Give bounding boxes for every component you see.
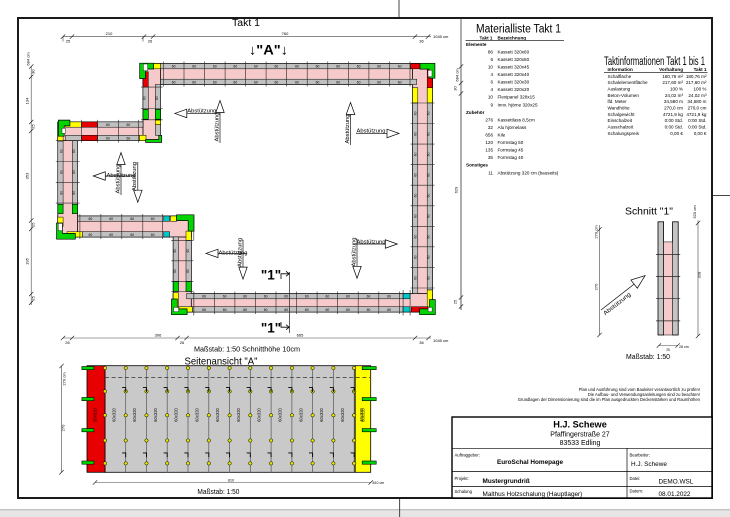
svg-text:60: 60 [109,233,113,237]
svg-text:30: 30 [453,86,458,91]
svg-text:180,76 m²: 180,76 m² [662,74,683,79]
svg-text:60: 60 [213,65,217,69]
svg-text:60: 60 [151,217,155,221]
svg-text:Elemente: Elemente [466,42,487,47]
svg-text:60: 60 [284,308,288,312]
svg-text:Alu hjörnelass: Alu hjörnelass [498,125,528,130]
svg-text:86: 86 [488,49,494,54]
svg-text:60x320: 60x320 [111,407,116,421]
svg-text:"1": "1" [261,268,281,283]
svg-text:60: 60 [89,233,93,237]
svg-text:60: 60 [59,170,63,174]
svg-text:60: 60 [305,308,309,312]
svg-text:60: 60 [192,80,196,84]
svg-text:Kile: Kile [498,133,506,138]
svg-text:11: 11 [488,170,493,175]
svg-text:Mustergrundriß: Mustergrundriß [483,478,530,485]
svg-text:60: 60 [413,214,417,218]
svg-text:60: 60 [151,233,155,237]
svg-text:60: 60 [413,132,417,136]
svg-text:Bezeichnung: Bezeichnung [498,36,527,41]
svg-text:760: 760 [282,31,289,36]
svg-text:6: 6 [490,57,493,62]
svg-text:60: 60 [426,276,430,280]
svg-text:60x320: 60x320 [340,407,345,421]
svg-text:Kassettlass 8,5cm: Kassettlass 8,5cm [498,117,535,122]
svg-text:60: 60 [106,136,110,140]
svg-text:60: 60 [284,295,288,299]
svg-text:35: 35 [488,155,494,160]
svg-text:60: 60 [336,65,340,69]
svg-text:Innv. hjörne 320x25: Innv. hjörne 320x25 [498,102,538,107]
svg-text:60: 60 [254,80,258,84]
svg-text:60x320: 60x320 [278,407,283,421]
svg-text:Abstützung: Abstützung [214,113,220,142]
svg-text:60: 60 [172,65,176,69]
svg-text:0:00 Std.: 0:00 Std. [688,118,706,123]
svg-text:Takt 1: Takt 1 [480,36,493,41]
svg-text:Ausschalzeit: Ausschalzeit [608,125,635,130]
svg-text:60: 60 [275,80,279,84]
svg-text:60: 60 [387,295,391,299]
svg-text:60: 60 [377,65,381,69]
svg-text:665: 665 [297,333,304,338]
svg-text:656: 656 [485,133,493,138]
svg-text:60: 60 [202,308,206,312]
svg-text:270: 270 [61,424,66,431]
svg-text:Schnitt "1": Schnitt "1" [625,206,673,218]
svg-text:217,60 m²: 217,60 m² [686,80,707,85]
svg-text:60: 60 [346,295,350,299]
svg-text:60: 60 [155,96,159,100]
svg-text:60: 60 [264,308,268,312]
svg-text:Zubehör: Zubehör [466,110,485,115]
svg-text:Formstag 40: Formstag 40 [498,155,524,160]
svg-text:60: 60 [413,194,417,198]
svg-text:EuroSchal Homepage: EuroSchal Homepage [497,459,563,466]
svg-text:Grundlagen der Dimensionierung: Grundlagen der Dimensionierung sind die … [518,397,701,402]
svg-text:328: 328 [697,271,702,278]
svg-text:24,02 m³: 24,02 m³ [688,93,707,98]
svg-text:180,76 m²: 180,76 m² [686,74,707,79]
svg-text:Abstützung: Abstützung [132,162,138,191]
svg-text:Datei:: Datei: [630,476,641,481]
svg-text:60: 60 [172,80,176,84]
svg-text:60: 60 [59,191,63,195]
svg-text:Materialliste Takt 1: Materialliste Takt 1 [476,24,561,36]
svg-text:60: 60 [387,308,391,312]
svg-text:60: 60 [336,80,340,84]
svg-text:"1": "1" [261,321,281,336]
svg-text:60: 60 [106,123,110,127]
svg-text:26: 26 [148,38,153,43]
svg-text:60: 60 [295,65,299,69]
svg-text:Information: Information [608,67,633,72]
svg-text:60: 60 [398,80,402,84]
svg-text:60x320: 60x320 [298,407,303,421]
svg-text:Abstützung: Abstützung [351,238,357,267]
svg-text:60: 60 [213,80,217,84]
svg-text:Abstützung: Abstützung [357,239,386,245]
svg-text:36: 36 [419,340,424,345]
svg-text:270: 270 [594,283,599,290]
svg-text:0:00 Std.: 0:00 Std. [665,118,683,123]
svg-text:60: 60 [243,308,247,312]
svg-text:60: 60 [316,80,320,84]
svg-text:Auftraggeber:: Auftraggeber: [455,453,480,458]
svg-text:4721,9 kg: 4721,9 kg [686,112,707,117]
svg-text:Kassett 320x40: Kassett 320x40 [498,72,530,77]
svg-text:25: 25 [31,222,36,227]
svg-text:276: 276 [485,117,493,122]
svg-text:320 cm: 320 cm [692,205,697,219]
svg-text:306: 306 [155,333,162,338]
svg-text:270,0 cm: 270,0 cm [664,106,683,111]
svg-text:60: 60 [413,235,417,239]
svg-text:60: 60 [109,217,113,221]
svg-text:60: 60 [173,269,177,273]
svg-text:40x320: 40x320 [359,407,364,421]
svg-text:Flexipanel 328x15: Flexipanel 328x15 [498,95,536,100]
svg-text:60x320: 60x320 [132,407,137,421]
svg-text:60: 60 [89,217,93,221]
svg-text:9: 9 [490,102,493,107]
svg-text:Kassett 320x50: Kassett 320x50 [498,57,530,62]
svg-text:100 %: 100 % [670,87,683,92]
svg-text:60: 60 [346,308,350,312]
svg-text:60: 60 [377,80,381,84]
svg-text:Abstützung: Abstützung [357,129,386,135]
svg-text:60: 60 [186,249,190,253]
svg-text:60: 60 [202,295,206,299]
svg-text:217,60 m²: 217,60 m² [662,80,683,85]
svg-text:08.01.2022: 08.01.2022 [659,491,691,498]
svg-text:Maßstab: 1:50: Maßstab: 1:50 [197,487,239,496]
svg-text:25: 25 [66,38,71,43]
svg-text:60x320: 60x320 [194,407,199,421]
svg-text:Kassett 320x45: Kassett 320x45 [498,65,530,70]
svg-text:Schalgewicht: Schalgewicht [608,112,636,117]
svg-text:Abstützung: Abstützung [187,108,216,114]
svg-text:60: 60 [130,233,134,237]
svg-text:Schalungspreis: Schalungspreis [608,131,640,136]
svg-text:60: 60 [142,96,146,100]
svg-text:60: 60 [426,152,430,156]
svg-text:Malthus Holzschalung (Hauptlag: Malthus Holzschalung (Hauptlager) [483,491,583,498]
svg-text:810 cm: 810 cm [373,481,385,485]
svg-text:25: 25 [31,124,36,129]
svg-text:Kassett 320x20: Kassett 320x20 [498,87,530,92]
svg-text:60: 60 [127,136,131,140]
svg-text:120: 120 [485,140,493,145]
svg-text:↓"A"↓: ↓"A"↓ [249,41,288,57]
svg-text:30: 30 [31,69,36,74]
svg-text:60: 60 [223,308,227,312]
svg-text:60: 60 [367,295,371,299]
svg-text:36: 36 [419,38,424,43]
svg-text:60: 60 [426,132,430,136]
svg-text:270 cm: 270 cm [594,225,599,239]
svg-text:26: 26 [65,340,70,345]
svg-text:Auslastung: Auslastung [608,87,631,92]
svg-text:Schalung: Schalung [455,489,473,494]
svg-text:60: 60 [357,80,361,84]
svg-text:DEMO.WSL: DEMO.WSL [659,479,694,486]
svg-text:10: 10 [488,95,494,100]
svg-text:Formstag 45: Formstag 45 [498,148,524,153]
svg-text:60: 60 [186,269,190,273]
svg-text:Wandhöhe: Wandhöhe [608,106,630,111]
svg-text:34,580 m: 34,580 m [687,99,706,104]
svg-text:1045 cm: 1045 cm [433,34,449,39]
svg-text:60x320: 60x320 [215,407,220,421]
svg-text:Pfaffingerstraße 27: Pfaffingerstraße 27 [550,432,610,439]
svg-text:60: 60 [243,295,247,299]
svg-text:Vorhaltung: Vorhaltung [659,67,683,72]
svg-text:60: 60 [426,194,430,198]
svg-text:60: 60 [357,65,361,69]
svg-text:83533 Edling: 83533 Edling [560,440,601,447]
svg-text:4721,9 kg: 4721,9 kg [663,112,684,117]
svg-text:60: 60 [426,255,430,259]
svg-text:1045 cm: 1045 cm [433,338,449,343]
svg-text:60: 60 [426,173,430,177]
svg-text:Projekt:: Projekt: [455,476,469,481]
svg-text:Abstützung 320 cm (bauseits): Abstützung 320 cm (bauseits) [498,170,559,175]
svg-text:0,00 €: 0,00 € [694,131,707,136]
svg-text:60: 60 [367,308,371,312]
svg-text:60x320: 60x320 [236,407,241,421]
svg-text:60: 60 [275,65,279,69]
svg-text:6: 6 [490,80,493,85]
svg-text:134: 134 [25,97,30,104]
svg-text:60: 60 [413,152,417,156]
svg-text:25: 25 [31,295,36,300]
svg-text:Abstützung: Abstützung [107,173,136,179]
svg-text:Maßstab: 1:50 Schnitthöhe 10: Maßstab: 1:50 Schnitthöhe 10cm [194,345,300,354]
svg-text:60: 60 [173,249,177,253]
svg-text:26: 26 [180,340,185,345]
svg-text:60: 60 [413,255,417,259]
svg-text:629: 629 [454,186,459,193]
svg-text:684 cm: 684 cm [26,52,31,66]
svg-text:24,02 m³: 24,02 m³ [665,93,684,98]
svg-text:60: 60 [233,80,237,84]
svg-text:353: 353 [25,172,30,179]
svg-text:Kassett 320x60: Kassett 320x60 [498,49,530,54]
svg-text:0,00 €: 0,00 € [670,131,683,136]
svg-text:60: 60 [72,191,76,195]
svg-text:135: 135 [485,148,493,153]
svg-text:60: 60 [223,295,227,299]
svg-text:Abstützung: Abstützung [345,115,351,144]
svg-text:60: 60 [413,173,417,177]
svg-text:60: 60 [264,295,268,299]
svg-text:Takt 1: Takt 1 [232,18,260,29]
svg-text:H.J. Schewe: H.J. Schewe [631,461,667,468]
svg-text:60x320: 60x320 [153,407,158,421]
svg-text:60: 60 [233,65,237,69]
svg-text:25: 25 [453,299,458,304]
svg-text:60: 60 [59,149,63,153]
svg-text:Kassett 320x30: Kassett 320x30 [498,80,530,85]
svg-text:60: 60 [305,295,309,299]
svg-text:Schalfläche: Schalfläche [608,74,632,79]
svg-text:60: 60 [254,65,258,69]
svg-text:50x320: 50x320 [93,407,98,421]
svg-text:Beton-Volumen: Beton-Volumen [608,93,640,98]
svg-text:810: 810 [228,478,234,482]
svg-text:Bearbeiter:: Bearbeiter: [630,453,650,458]
svg-text:210: 210 [106,31,113,36]
svg-text:0:00 Std.: 0:00 Std. [688,125,706,130]
svg-text:32: 32 [488,125,494,130]
svg-text:34,580 m: 34,580 m [664,99,683,104]
svg-text:0:00 Std.: 0:00 Std. [665,125,683,130]
svg-text:60: 60 [192,65,196,69]
svg-text:684 cm: 684 cm [455,68,460,82]
svg-text:Maßstab: 1:50: Maßstab: 1:50 [626,352,670,361]
svg-text:Abstützung: Abstützung [237,238,243,267]
svg-text:60: 60 [326,295,330,299]
svg-text:60: 60 [426,235,430,239]
svg-text:H.J. Schewe: H.J. Schewe [553,420,607,430]
svg-text:60: 60 [413,276,417,280]
svg-text:4: 4 [490,72,493,77]
svg-text:60: 60 [72,170,76,174]
svg-text:195: 195 [25,257,30,264]
svg-text:60: 60 [72,149,76,153]
svg-text:270,0 cm: 270,0 cm [688,106,707,111]
svg-text:60: 60 [426,214,430,218]
svg-text:100 %: 100 % [693,87,706,92]
svg-text:60: 60 [426,111,430,115]
svg-text:60: 60 [295,80,299,84]
svg-text:60: 60 [326,308,330,312]
svg-text:Formstag 50: Formstag 50 [498,140,524,145]
svg-text:Schalelementfläche: Schalelementfläche [608,80,649,85]
svg-text:60x320: 60x320 [257,407,262,421]
svg-text:28 cm: 28 cm [679,345,689,349]
svg-text:60: 60 [316,65,320,69]
svg-text:10: 10 [488,65,494,70]
svg-text:60: 60 [130,217,134,221]
svg-text:60: 60 [413,111,417,115]
svg-text:270 cm: 270 cm [62,372,67,386]
svg-text:Takt 1: Takt 1 [694,67,707,72]
svg-text:4: 4 [490,87,493,92]
svg-text:60x320: 60x320 [174,407,179,421]
svg-text:60: 60 [398,65,402,69]
svg-text:lfd. Meter: lfd. Meter [608,99,628,104]
svg-text:60: 60 [127,123,131,127]
svg-text:Einschalzeit: Einschalzeit [608,118,633,123]
svg-text:Sonstiges: Sonstiges [466,163,488,168]
svg-text:Datum:: Datum: [630,488,644,493]
svg-text:60x320: 60x320 [319,407,324,421]
